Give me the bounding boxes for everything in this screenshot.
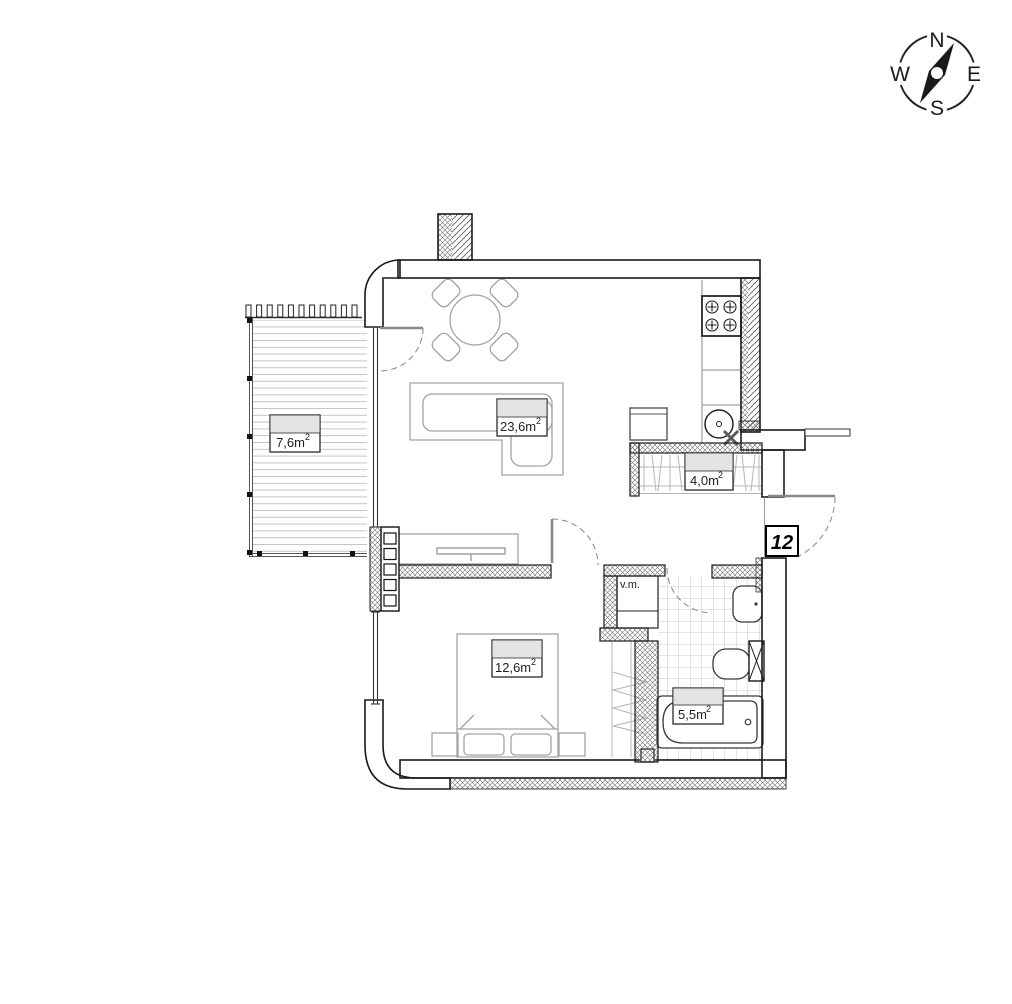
svg-text:12,6m: 12,6m xyxy=(495,660,531,675)
fridge xyxy=(630,408,667,440)
compass-needle-hub xyxy=(931,67,943,79)
balcony-door-arc xyxy=(380,328,423,371)
svg-text:23,6m: 23,6m xyxy=(500,419,536,434)
floor-plan-svg: 7,6m 2 23,6m 2 4,0m 2 12,6m 2 5,5m 2 v.m… xyxy=(0,0,1012,1004)
wall-vm-left xyxy=(604,576,617,628)
room-label-hallway: 4,0m 2 xyxy=(685,453,733,490)
pillow xyxy=(511,734,551,755)
pillow xyxy=(464,734,504,755)
wall-chimney xyxy=(438,214,472,260)
svg-text:4,0m: 4,0m xyxy=(690,473,719,488)
windows xyxy=(371,327,380,704)
toilet xyxy=(713,649,750,679)
washing-machine-label: v.m. xyxy=(620,579,640,591)
dining-table xyxy=(450,295,500,345)
wall-neighbor-stub xyxy=(805,429,850,436)
nightstand-left xyxy=(432,733,458,756)
wall-right-lower xyxy=(762,558,786,778)
radiator-column xyxy=(370,527,399,611)
bedroom-door-arc xyxy=(552,519,598,565)
wall-bottom xyxy=(400,760,786,778)
wall-insulation-strip xyxy=(739,421,760,430)
wall-bath-left xyxy=(635,641,658,762)
svg-text:2: 2 xyxy=(718,470,723,480)
svg-text:2: 2 xyxy=(305,432,310,442)
wall-vm-top xyxy=(604,565,665,576)
svg-text:12: 12 xyxy=(771,532,793,554)
svg-text:7,6m: 7,6m xyxy=(276,435,305,450)
compass-east-label: E xyxy=(967,63,981,86)
washbasin-tap xyxy=(754,602,757,605)
wall-hall-left xyxy=(630,443,639,496)
svg-text:2: 2 xyxy=(536,416,541,426)
wall-top xyxy=(398,260,760,278)
floor-plan-page: 7,6m 2 23,6m 2 4,0m 2 12,6m 2 5,5m 2 v.m… xyxy=(0,0,1012,1004)
room-label-balcony: 7,6m 2 xyxy=(270,415,320,452)
wall-partition-bedroom xyxy=(383,565,551,578)
kitchen-sink xyxy=(705,410,738,445)
wall-bottom-insulation xyxy=(450,778,786,789)
dining-set xyxy=(430,277,521,364)
kitchen xyxy=(630,280,741,445)
room-label-bathroom: 5,5m 2 xyxy=(673,688,723,724)
compass-rose: N E S W xyxy=(890,29,981,120)
balcony-balusters xyxy=(246,305,357,317)
entry-door-arc xyxy=(799,497,835,556)
tv-sideboard xyxy=(397,534,518,564)
wall-closet-top xyxy=(600,628,648,641)
compass-west-label: W xyxy=(890,63,910,86)
wall-right-kitchen xyxy=(741,278,760,432)
room-label-living: 23,6m 2 xyxy=(497,399,547,436)
stove xyxy=(702,296,741,336)
svg-text:2: 2 xyxy=(706,704,711,714)
wall-entry-jamb xyxy=(762,450,784,497)
compass-north-label: N xyxy=(929,29,944,52)
wall-corner-bottomleft xyxy=(365,700,450,789)
wall-hall-top xyxy=(630,443,762,453)
svg-text:5,5m: 5,5m xyxy=(678,707,707,722)
room-label-bedroom: 12,6m 2 xyxy=(492,640,542,677)
unit-number-plate: 12 xyxy=(766,526,798,556)
compass-south-label: S xyxy=(930,97,944,120)
svg-text:2: 2 xyxy=(531,657,536,667)
wall-corner-topleft xyxy=(365,260,400,327)
wall-bath-top xyxy=(712,565,762,578)
tv xyxy=(437,548,505,554)
nightstand-right xyxy=(559,733,585,756)
